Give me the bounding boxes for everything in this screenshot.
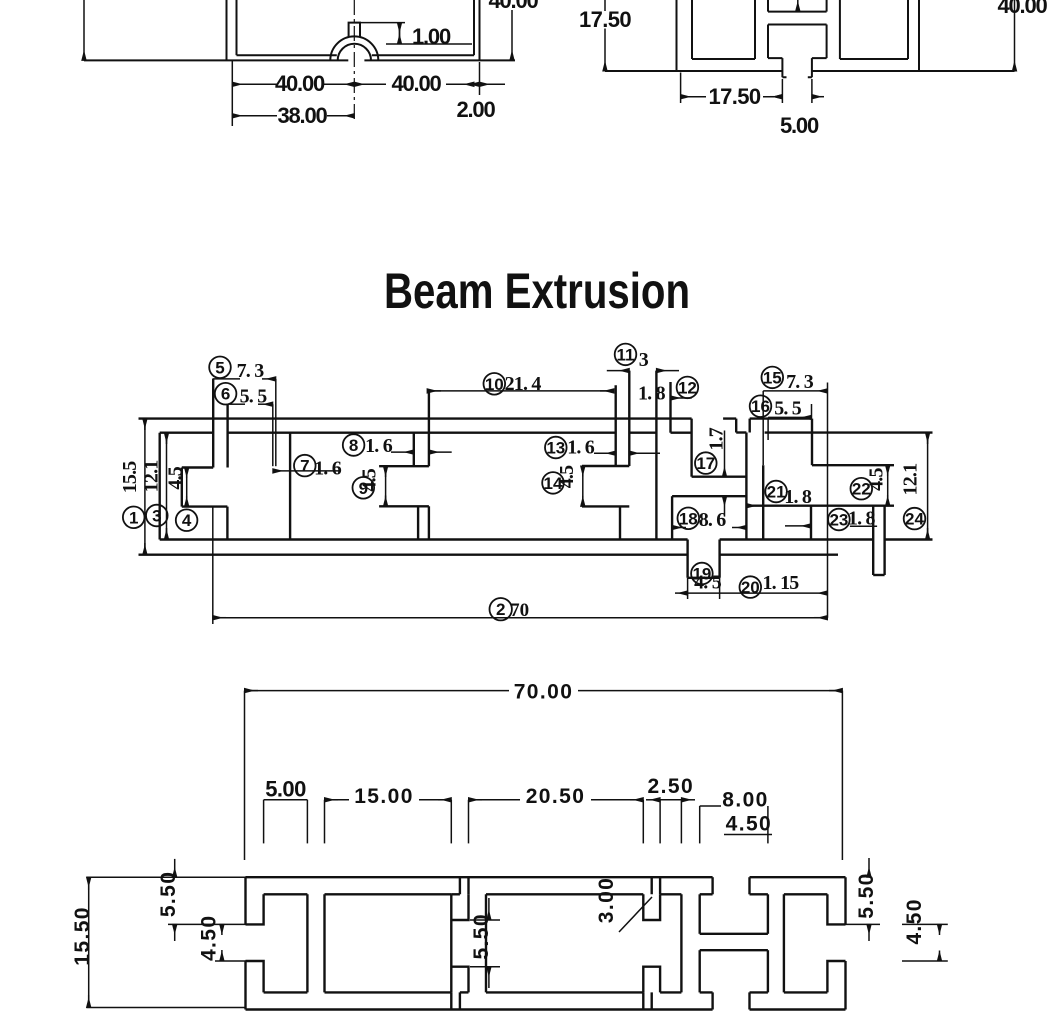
svg-text:17.50: 17.50 xyxy=(708,84,760,109)
svg-text:8.00: 8.00 xyxy=(722,789,768,812)
svg-text:13: 13 xyxy=(546,439,565,458)
svg-text:23: 23 xyxy=(829,511,848,530)
svg-text:3: 3 xyxy=(639,349,649,371)
svg-text:70.00: 70.00 xyxy=(514,681,574,704)
svg-text:4.50: 4.50 xyxy=(726,813,772,836)
svg-text:5.00: 5.00 xyxy=(780,113,819,138)
svg-text:16: 16 xyxy=(751,397,770,416)
svg-text:7: 7 xyxy=(300,457,309,476)
svg-text:15.00: 15.00 xyxy=(354,785,414,808)
svg-text:1. 6: 1. 6 xyxy=(314,458,342,480)
svg-text:1: 1 xyxy=(129,508,138,527)
svg-text:22: 22 xyxy=(852,480,871,499)
svg-text:5.50: 5.50 xyxy=(470,913,493,959)
svg-text:40.00: 40.00 xyxy=(275,71,325,96)
svg-text:1. 6: 1. 6 xyxy=(365,435,393,457)
svg-text:7. 3: 7. 3 xyxy=(786,371,814,393)
svg-text:10: 10 xyxy=(485,375,504,394)
svg-text:19: 19 xyxy=(692,565,711,584)
svg-text:5. 5: 5. 5 xyxy=(240,386,268,408)
svg-text:20: 20 xyxy=(741,578,760,597)
svg-text:20.50: 20.50 xyxy=(526,785,586,808)
svg-text:70: 70 xyxy=(510,600,529,621)
svg-text:24: 24 xyxy=(905,510,924,529)
svg-text:5.50: 5.50 xyxy=(157,871,180,917)
svg-text:4.50: 4.50 xyxy=(903,898,926,944)
svg-text:17.50: 17.50 xyxy=(579,7,631,32)
svg-text:1.00: 1.00 xyxy=(412,24,451,49)
svg-text:2.00: 2.00 xyxy=(456,97,495,122)
svg-text:1. 8: 1. 8 xyxy=(848,508,876,530)
svg-text:18: 18 xyxy=(679,509,698,528)
svg-text:11: 11 xyxy=(617,345,635,364)
svg-text:12: 12 xyxy=(678,378,697,397)
svg-text:1. 15: 1. 15 xyxy=(762,572,799,594)
svg-text:14: 14 xyxy=(544,474,563,493)
svg-text:40.00: 40.00 xyxy=(488,0,538,13)
svg-text:1. 8: 1. 8 xyxy=(784,486,812,508)
svg-text:4.5: 4.5 xyxy=(164,466,186,489)
svg-text:6: 6 xyxy=(221,385,230,404)
svg-text:40.00: 40.00 xyxy=(391,71,441,96)
svg-text:17: 17 xyxy=(696,454,715,473)
svg-text:21: 21 xyxy=(767,483,786,502)
svg-text:2.50: 2.50 xyxy=(648,775,694,798)
svg-text:15.5: 15.5 xyxy=(119,461,141,494)
svg-text:15: 15 xyxy=(763,368,782,387)
svg-text:9: 9 xyxy=(359,479,368,498)
svg-text:1.7: 1.7 xyxy=(705,427,727,450)
svg-text:8: 8 xyxy=(349,436,358,455)
svg-text:7. 3: 7. 3 xyxy=(237,360,265,382)
svg-text:12.1: 12.1 xyxy=(900,464,922,496)
svg-text:3.00: 3.00 xyxy=(595,877,618,923)
svg-text:12.1: 12.1 xyxy=(141,460,163,492)
svg-text:40.00: 40.00 xyxy=(997,0,1047,18)
svg-text:1. 8: 1. 8 xyxy=(638,383,666,405)
svg-text:3: 3 xyxy=(152,507,161,526)
svg-text:5.50: 5.50 xyxy=(855,872,878,918)
svg-text:1. 6: 1. 6 xyxy=(567,437,595,459)
svg-text:2: 2 xyxy=(496,600,505,619)
svg-text:Beam Extrusion: Beam Extrusion xyxy=(384,263,690,319)
svg-text:38.00: 38.00 xyxy=(277,103,327,128)
svg-text:4: 4 xyxy=(182,511,192,530)
svg-text:5. 5: 5. 5 xyxy=(774,398,802,420)
svg-text:8. 6: 8. 6 xyxy=(699,509,727,531)
svg-text:21. 4: 21. 4 xyxy=(505,373,542,395)
svg-text:4.50: 4.50 xyxy=(198,915,221,961)
svg-text:15.50: 15.50 xyxy=(71,906,94,966)
svg-text:5.00: 5.00 xyxy=(265,777,306,802)
svg-text:5: 5 xyxy=(215,358,224,377)
